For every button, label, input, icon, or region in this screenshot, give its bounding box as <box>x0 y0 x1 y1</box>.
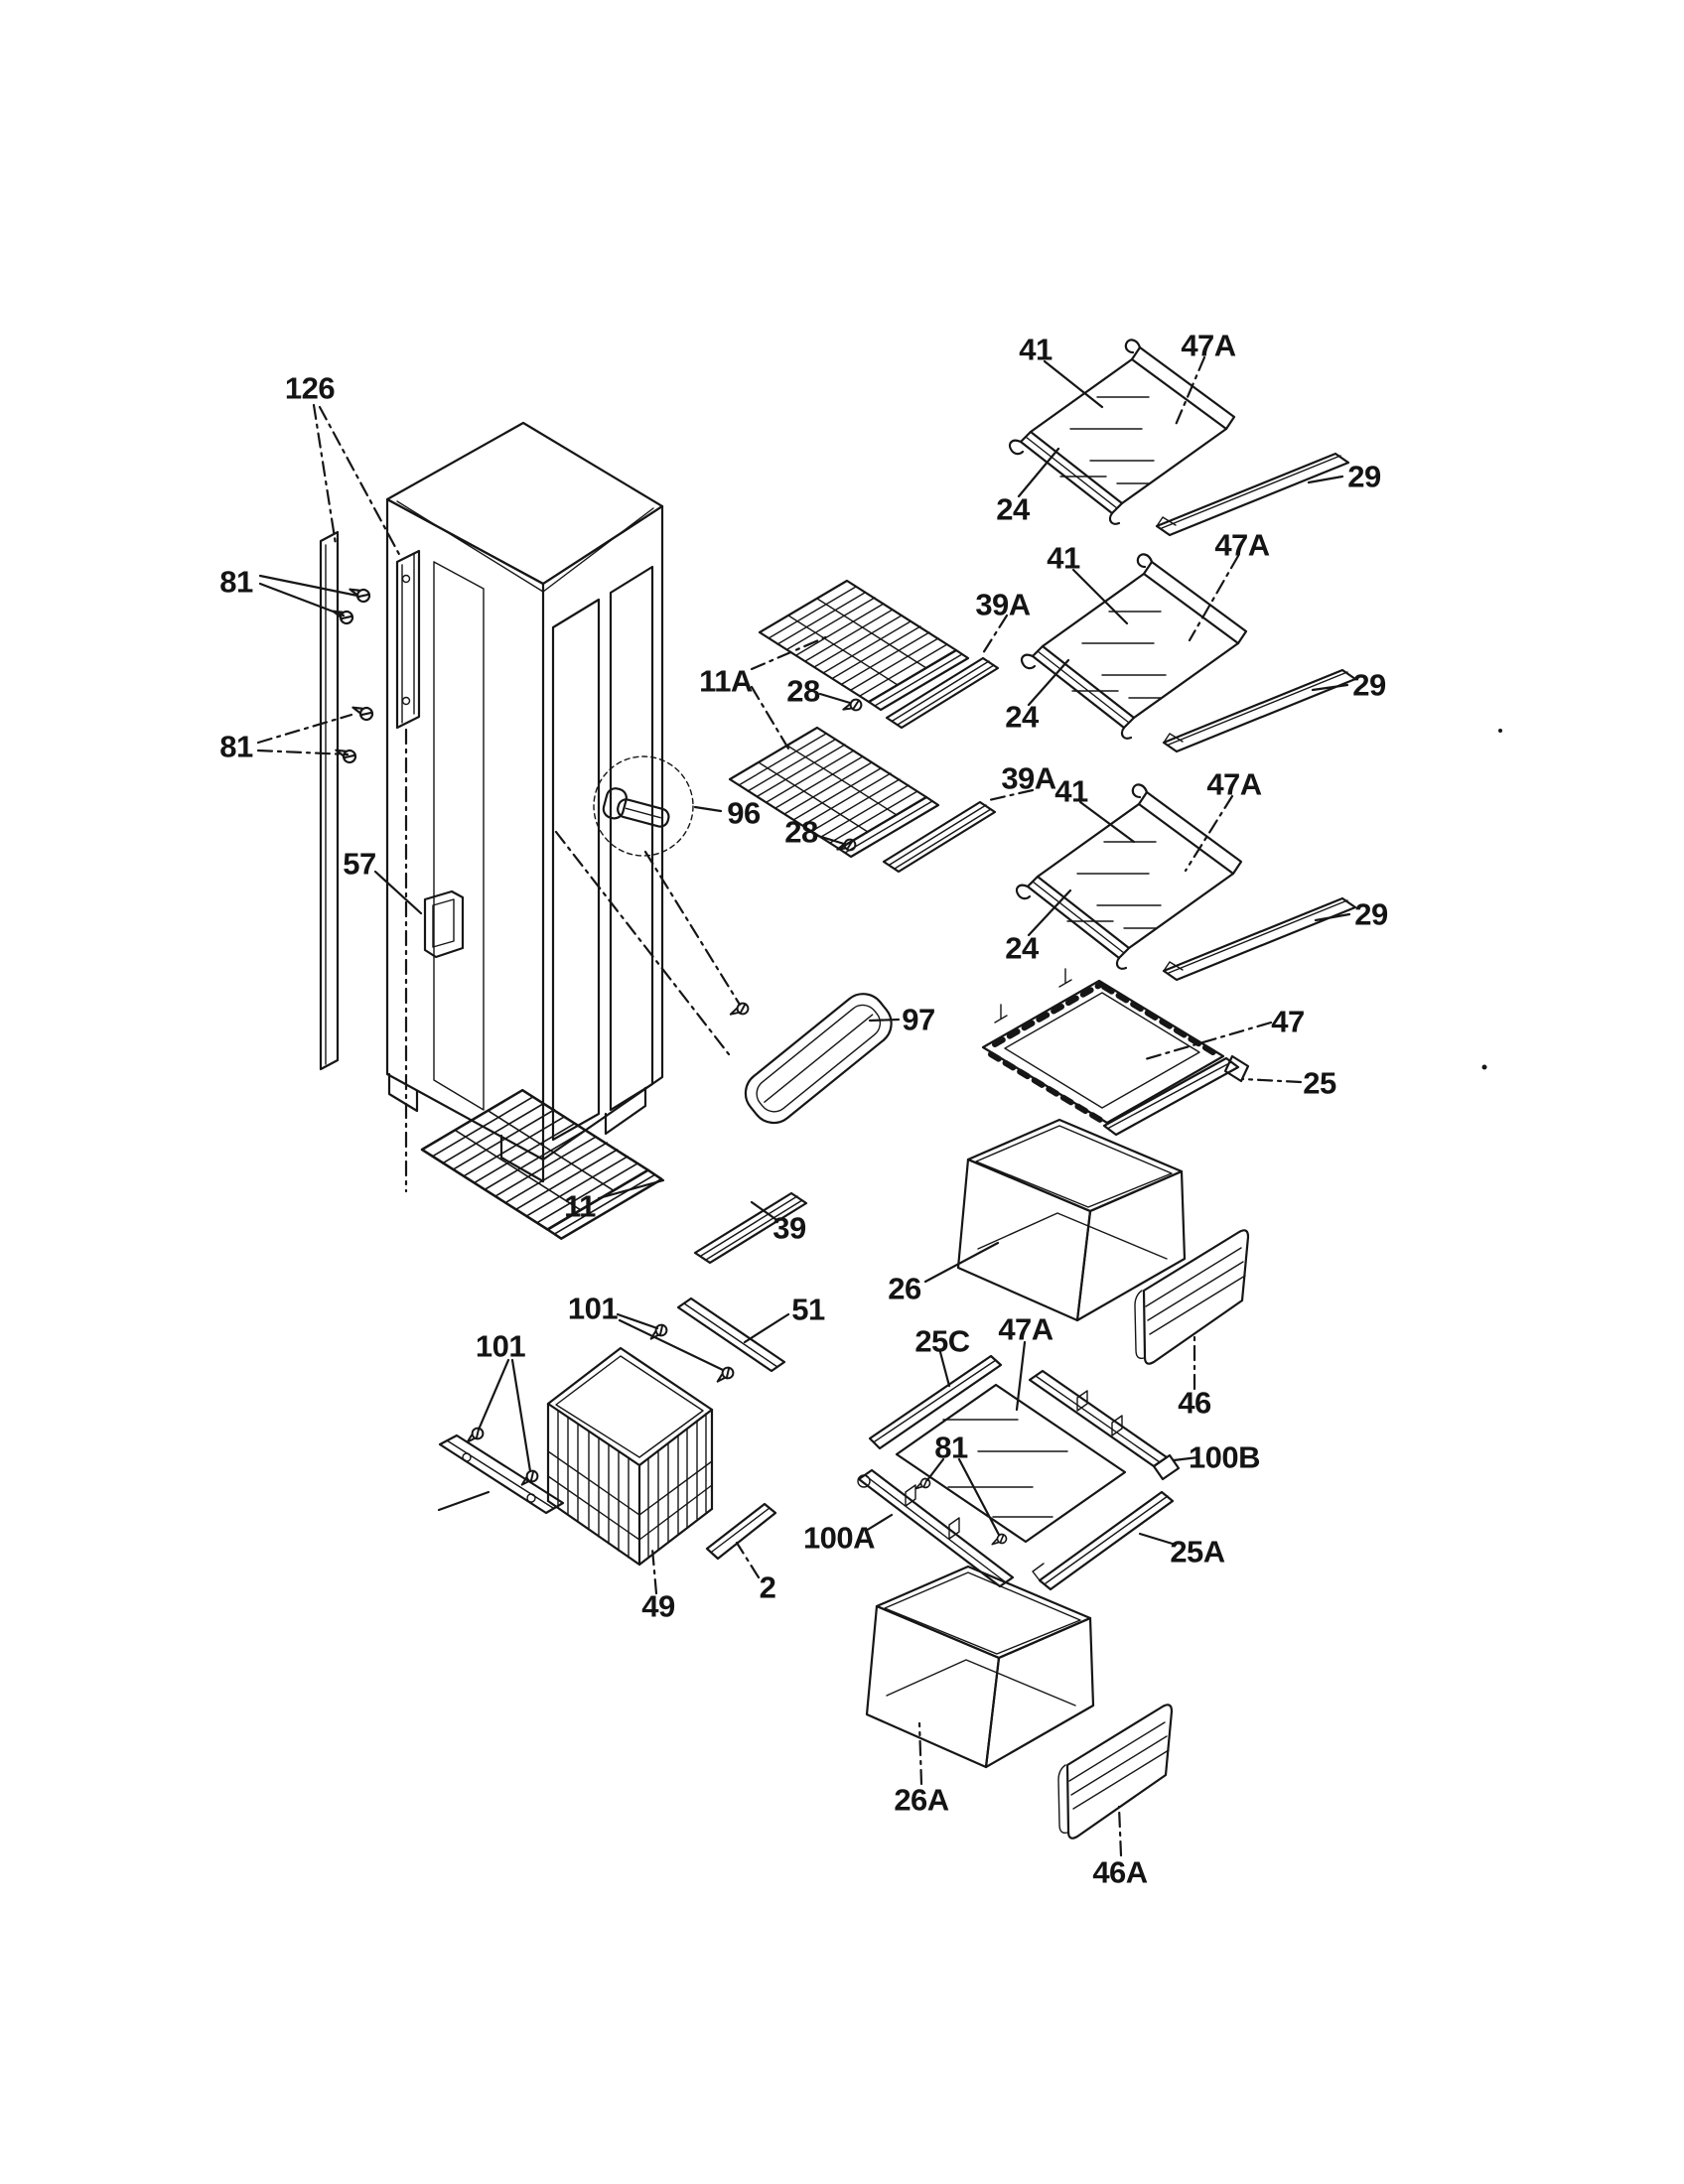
part-label-101-top: 101 <box>568 1294 618 1324</box>
part-label-24-shelf1: 24 <box>996 494 1029 525</box>
diagram-artwork <box>0 0 1684 2184</box>
part-label-100A: 100A <box>803 1523 875 1554</box>
part-label-81-bottom: 81 <box>934 1433 967 1463</box>
part-label-51: 51 <box>791 1295 824 1325</box>
part-label-96: 96 <box>727 798 760 829</box>
fastener-detail-96 <box>594 756 693 856</box>
part-label-25A: 25A <box>1170 1537 1224 1568</box>
duct-97 <box>737 985 901 1132</box>
part-label-25C: 25C <box>914 1326 969 1357</box>
part-label-25: 25 <box>1303 1068 1335 1099</box>
handle-57 <box>425 891 463 957</box>
part-label-46A: 46A <box>1092 1857 1147 1888</box>
part-label-97: 97 <box>902 1005 934 1035</box>
part-label-126: 126 <box>285 373 335 404</box>
part-label-29-shelf3: 29 <box>1354 899 1387 930</box>
part-label-28-lower: 28 <box>784 817 817 848</box>
part-label-26A: 26A <box>894 1785 948 1816</box>
part-label-101-left: 101 <box>476 1331 525 1362</box>
part-label-47A-bottom: 47A <box>998 1314 1052 1345</box>
part-label-2: 2 <box>760 1572 776 1603</box>
freezer-basket-49 <box>548 1348 712 1565</box>
part-label-11A: 11A <box>699 666 753 697</box>
part-label-46: 46 <box>1178 1388 1210 1419</box>
part-label-39: 39 <box>772 1213 805 1244</box>
part-label-39A-upper: 39A <box>975 590 1030 620</box>
part-label-28-upper: 28 <box>786 676 819 707</box>
rail-52 <box>440 1435 563 1513</box>
part-label-47: 47 <box>1271 1007 1304 1037</box>
rail-100B <box>1030 1371 1179 1479</box>
part-label-26: 26 <box>888 1274 920 1304</box>
part-label-81-mid: 81 <box>219 732 252 762</box>
part-label-81-top: 81 <box>219 567 252 598</box>
part-label-39A-lower: 39A <box>1001 763 1055 794</box>
part-label-29-shelf2: 29 <box>1352 670 1385 701</box>
part-label-57: 57 <box>343 849 375 880</box>
part-label-29-shelf1: 29 <box>1347 462 1380 492</box>
part-label-41-shelf2: 41 <box>1047 543 1079 574</box>
part-label-24-shelf2: 24 <box>1005 702 1038 733</box>
glass-shelf-47A-bottom <box>897 1385 1125 1542</box>
rail-25A <box>1033 1492 1173 1589</box>
part-label-47A-shelf3: 47A <box>1206 769 1261 800</box>
deli-shelf-47 <box>983 969 1248 1135</box>
part-label-47A-shelf2: 47A <box>1214 530 1269 561</box>
part-label-24-shelf3: 24 <box>1005 933 1038 964</box>
parts-diagram-canvas: 126 81 81 57 96 11A 28 39A 41 47A 24 29 … <box>0 0 1684 2184</box>
leader-lines <box>260 361 1349 1545</box>
part-label-49: 49 <box>641 1591 674 1622</box>
part-label-41-shelf3: 41 <box>1054 776 1087 807</box>
part-label-47A-shelf1: 47A <box>1181 331 1235 361</box>
part-label-41-shelf1: 41 <box>1019 335 1052 365</box>
rail-51 <box>678 1298 784 1371</box>
part-label-100B: 100B <box>1189 1442 1260 1473</box>
part-label-11: 11 <box>564 1191 596 1222</box>
